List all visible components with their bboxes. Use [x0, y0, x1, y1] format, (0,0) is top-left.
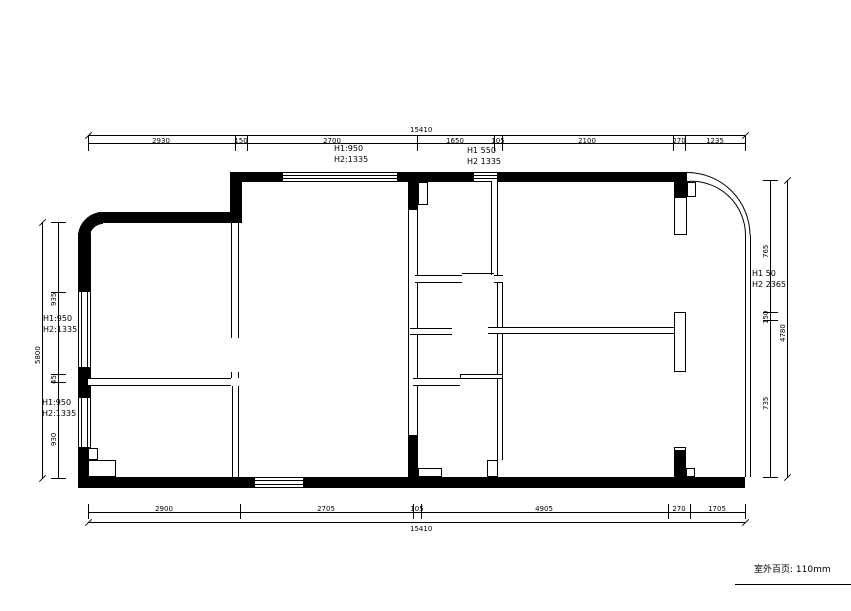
- wall-stub-top-right: [674, 197, 687, 235]
- balcony-glazing-right: [745, 235, 751, 477]
- annotation-line: H1 550: [467, 145, 501, 156]
- annotation-window-top-left: H1:950 H2:1335: [334, 143, 368, 165]
- dim-tick: [745, 504, 746, 519]
- annotation-line: H2 1335: [467, 156, 501, 167]
- door-opening-bottom: [487, 460, 498, 477]
- dim-label: 2900: [155, 505, 173, 513]
- annotation-line: H2:1335: [43, 324, 77, 335]
- sliding-door-symbol: [460, 374, 503, 379]
- interior-wall-left-vertical-upper: [231, 223, 239, 338]
- annotation-line: H2:1335: [334, 154, 368, 165]
- dim-label-top-total: 15410: [410, 126, 432, 134]
- dim-label: 105: [491, 137, 504, 145]
- dim-tick: [88, 136, 89, 151]
- annotation-window-left-upper: H1:950 H2:1335: [43, 313, 77, 335]
- annotation-line: H1 50: [752, 268, 786, 279]
- column-base-bottom-right: [686, 468, 695, 477]
- dim-label: 1235: [706, 137, 724, 145]
- annotation-line: H1:950: [43, 313, 77, 324]
- dim-tick: [763, 180, 778, 181]
- door-swing-line: [462, 273, 494, 274]
- dim-label: 45: [50, 375, 58, 384]
- interior-wall-main-vertical-bottom: [408, 435, 418, 477]
- dim-label: 930: [50, 433, 58, 446]
- interior-wall-middle-vertical: [497, 283, 503, 460]
- interior-wall-end-cap: [494, 275, 503, 283]
- annotation-window-left-lower: H1:950 H2:1335: [42, 397, 76, 419]
- dim-line-left-total: [42, 222, 43, 478]
- dim-label: 150: [762, 311, 770, 324]
- step-small: [88, 448, 98, 460]
- dim-label: 1650: [446, 137, 464, 145]
- column-middle-right: [674, 312, 686, 372]
- annotation-line: H2 2365: [752, 279, 786, 290]
- bath-fixture: [418, 468, 442, 477]
- dim-tick: [745, 136, 746, 151]
- title-block-rule: [735, 584, 851, 585]
- dim-label: 765: [762, 245, 770, 258]
- interior-wall-main-vertical-top: [408, 172, 418, 210]
- annotation-line: H2:1335: [42, 408, 76, 419]
- dim-label: 1705: [708, 505, 726, 513]
- outer-wall-bottom: [78, 477, 745, 488]
- dim-label: 735: [762, 397, 770, 410]
- dim-label: 2100: [578, 137, 596, 145]
- dim-label: 935: [50, 293, 58, 306]
- outer-wall-step-horizontal: [98, 212, 242, 223]
- dim-tick: [417, 136, 418, 151]
- balcony-curve-outer: [687, 173, 750, 237]
- interior-wall-main-vertical: [408, 210, 418, 435]
- step-large: [88, 460, 116, 477]
- dim-line-right-segments: [770, 180, 771, 477]
- dim-label-right-total: 4780: [779, 324, 787, 342]
- window-symbol-top-large: [283, 172, 397, 182]
- dim-tick: [763, 477, 778, 478]
- dim-label: 105: [410, 505, 423, 513]
- annotation-line: H1:950: [334, 143, 368, 154]
- window-symbol-bottom: [255, 477, 303, 488]
- dim-line-bottom-total: [88, 522, 745, 523]
- column-cap-top-right: [687, 182, 696, 197]
- curved-walls: [0, 0, 851, 611]
- dim-line-left-segments: [58, 222, 59, 478]
- dim-tick: [51, 478, 66, 479]
- dim-label: 2930: [152, 137, 170, 145]
- floor-plan: 15410 2930 150 2700 1650 105 2100 270 12…: [0, 0, 851, 611]
- dim-label: 270: [672, 137, 685, 145]
- annotation-window-right: H1 50 H2 2365: [752, 268, 786, 290]
- interior-wall-bath-top: [413, 378, 460, 386]
- interior-wall-left-vertical-lower: [232, 386, 239, 477]
- dim-label-bottom-total: 15410: [410, 525, 432, 533]
- dim-line-right-total: [787, 180, 788, 477]
- dim-tick: [668, 504, 669, 519]
- dim-label: 2705: [317, 505, 335, 513]
- window-symbol-left-lower: [78, 398, 91, 447]
- dim-tick: [51, 222, 66, 223]
- dim-tick: [690, 504, 691, 519]
- dim-tick: [88, 504, 89, 519]
- annotation-line: H1:950: [42, 397, 76, 408]
- column-bottom-right: [674, 450, 686, 477]
- door-leaf-top-room: [418, 182, 428, 205]
- window-symbol-left-upper: [78, 292, 91, 367]
- interior-wall-small-room-right: [491, 181, 498, 275]
- interior-wall-left-horizontal: [88, 378, 231, 386]
- interior-wall-left-vertical-jamb: [231, 372, 239, 378]
- dim-label: 4905: [535, 505, 553, 513]
- interior-wall-middle-long: [488, 327, 674, 334]
- interior-wall-stub: [410, 328, 452, 335]
- dim-tick: [240, 504, 241, 519]
- outer-wall-left-upper: [78, 233, 91, 292]
- annotation-window-top-right: H1 550 H2 1335: [467, 145, 501, 167]
- dim-label: 270: [672, 505, 685, 513]
- dim-label: 150: [234, 137, 247, 145]
- column-top-right: [674, 172, 687, 197]
- dim-label-left-total: 5800: [34, 346, 42, 364]
- note-bottom-right: 室外百页: 110mm: [754, 565, 831, 576]
- interior-wall-small-room-bottom: [415, 275, 462, 283]
